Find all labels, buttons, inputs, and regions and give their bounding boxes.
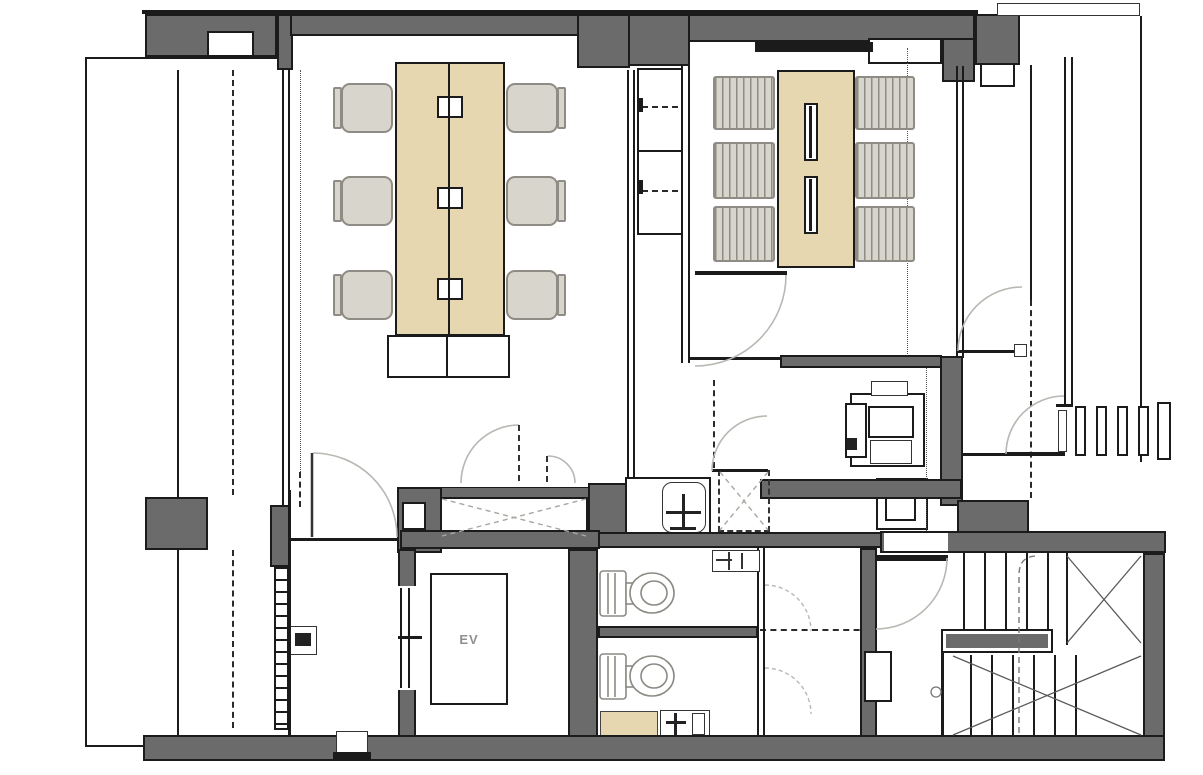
stair-newel [931,687,941,697]
door-swing [695,275,786,366]
plan-annotations [0,0,1203,775]
stall-door-swing [765,668,811,714]
door-swing [876,558,947,629]
floor-plan: EV [0,0,1203,775]
toilet-bowl-inner [641,664,667,688]
door-swing [548,456,575,483]
toilet-bowl-inner [641,581,667,605]
door-swing [958,287,1022,351]
toilet-tank [600,571,626,616]
door-swing [461,425,519,483]
door-swing [313,453,397,537]
stall-door-swing [765,585,811,631]
door-swing [1006,396,1064,454]
toilet-tank [600,654,626,699]
door-swing [712,416,767,471]
